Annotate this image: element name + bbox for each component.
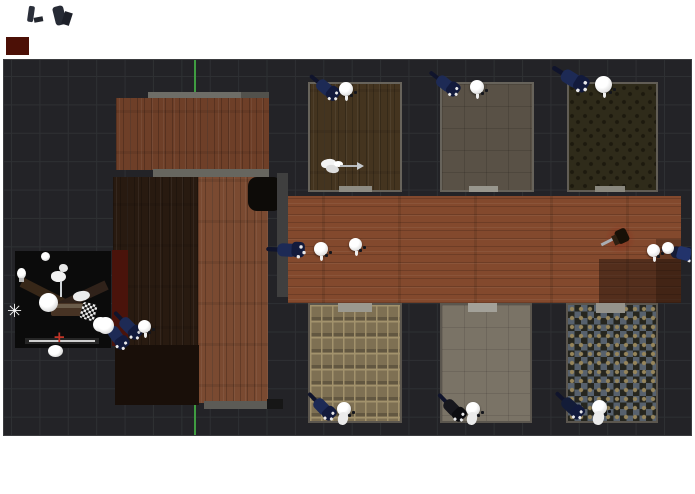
knight-bottom-1-speckle-1 xyxy=(330,417,334,421)
head-left-building-speckle-1 xyxy=(152,328,155,331)
room-bottom-2-door[interactable] xyxy=(468,303,497,312)
knight-top-3-speckle-1 xyxy=(583,87,587,91)
render-preview-room[interactable]: ✳+ xyxy=(15,251,111,348)
head-corridor-2-speckle-0 xyxy=(359,249,362,252)
head-top-2-tail xyxy=(476,94,479,99)
preview-sphere-top[interactable] xyxy=(41,252,50,261)
stray-mark-2 xyxy=(34,16,44,22)
knight-bottom-3-speckle-1 xyxy=(578,415,582,419)
head-corridor-2-speckle-1 xyxy=(363,246,366,249)
head-bottom-1-body xyxy=(337,411,350,426)
head-bottom-3-speckle-1 xyxy=(608,410,611,413)
wall-bottom-strip xyxy=(204,401,267,409)
head-corridor-right-tail xyxy=(653,257,656,262)
wall-mid-strip xyxy=(153,169,269,177)
head-bottom-2-body xyxy=(466,411,479,426)
knight-corridor-right-speckle-0 xyxy=(691,251,692,254)
room-top-1[interactable] xyxy=(308,82,402,192)
preview-star-sparkle[interactable]: ✳ xyxy=(7,303,22,321)
preview-sphere-bottom[interactable] xyxy=(48,345,63,357)
room-top-3-door[interactable] xyxy=(595,186,625,192)
preview-lamp-blob-2[interactable] xyxy=(59,264,68,272)
editor-stage: ✳+ xyxy=(0,0,695,494)
knight-top-1-speckle-1 xyxy=(334,97,338,101)
wall-bottom-dark xyxy=(267,399,283,409)
head-corridor-2[interactable] xyxy=(349,238,362,251)
head-bottom-2-speckle-1 xyxy=(481,411,484,414)
head-bottom-1[interactable] xyxy=(337,402,351,416)
head-bottom-1-speckle-1 xyxy=(352,411,355,414)
head-corridor-1-speckle-0 xyxy=(325,254,328,257)
head-top-3[interactable] xyxy=(595,76,612,93)
room-top-1-door[interactable] xyxy=(339,186,372,192)
head-bottom-3[interactable] xyxy=(592,400,607,415)
head-corridor-right-speckle-0 xyxy=(657,255,660,258)
room-top-2-floor xyxy=(442,84,532,190)
head-left-building-speckle-0 xyxy=(148,331,151,334)
room-top-3[interactable] xyxy=(567,82,658,192)
upper-room-floor xyxy=(116,98,269,170)
stray-red-block xyxy=(6,37,29,55)
head-top-1-speckle-1 xyxy=(354,91,357,94)
head-left-building[interactable] xyxy=(138,320,151,333)
knight-corridor-left-speckle-1 xyxy=(302,251,305,254)
head-top-3-speckle-1 xyxy=(613,88,616,91)
head-top-1[interactable] xyxy=(339,82,353,96)
room-top-2-door[interactable] xyxy=(469,186,498,192)
preview-lamp-blob[interactable] xyxy=(51,271,66,282)
head-corridor-right[interactable] xyxy=(647,244,660,257)
head-top-2[interactable] xyxy=(470,80,484,94)
head-bottom-3-body xyxy=(591,410,605,426)
head-corridor-2-tail xyxy=(355,251,358,256)
head-bottom-2[interactable] xyxy=(466,402,480,416)
room-bottom-3-door[interactable] xyxy=(596,303,625,313)
preview-red-cross[interactable]: + xyxy=(53,330,66,345)
preview-lamp-stem[interactable] xyxy=(60,281,62,297)
room-top-1-floor xyxy=(310,84,400,190)
bottom-dark-room xyxy=(115,345,199,405)
corridor-left-wall xyxy=(277,173,288,297)
preview-bulb-base[interactable] xyxy=(19,278,24,282)
room-top-3-floor xyxy=(569,84,656,190)
viewport-3d[interactable]: ✳+ xyxy=(3,59,692,436)
sphere-left-building[interactable] xyxy=(97,317,114,334)
head-corridor-1[interactable] xyxy=(314,242,328,256)
knight-corridor-left[interactable] xyxy=(266,239,307,261)
scene-layer: ✳+ xyxy=(3,59,692,436)
head-top-1-speckle-0 xyxy=(350,94,353,97)
head-top-2-speckle-0 xyxy=(481,92,484,95)
room-bottom-1-door[interactable] xyxy=(338,303,372,312)
head-top-3-tail xyxy=(603,93,606,98)
head-corridor-1-speckle-1 xyxy=(329,251,332,254)
head-corridor-1-tail xyxy=(320,256,323,261)
knight-corridor-left-speckle-0 xyxy=(299,245,302,248)
knight-bottom-2-speckle-1 xyxy=(460,418,464,422)
knight-left-building-speckle-1 xyxy=(136,336,140,340)
head-left-building-tail xyxy=(144,333,147,338)
preview-sphere-large[interactable] xyxy=(39,293,58,312)
knight-corridor-left-speckle-2 xyxy=(297,255,300,258)
head-top-1-tail xyxy=(345,96,348,101)
head-top-3-speckle-0 xyxy=(609,91,612,94)
preview-paper-shape[interactable] xyxy=(72,289,91,302)
head-top-2-speckle-1 xyxy=(485,89,488,92)
sphere-corridor-right[interactable] xyxy=(662,242,674,254)
knight-top-2-speckle-1 xyxy=(454,92,458,96)
arrow-head[interactable] xyxy=(357,162,364,170)
